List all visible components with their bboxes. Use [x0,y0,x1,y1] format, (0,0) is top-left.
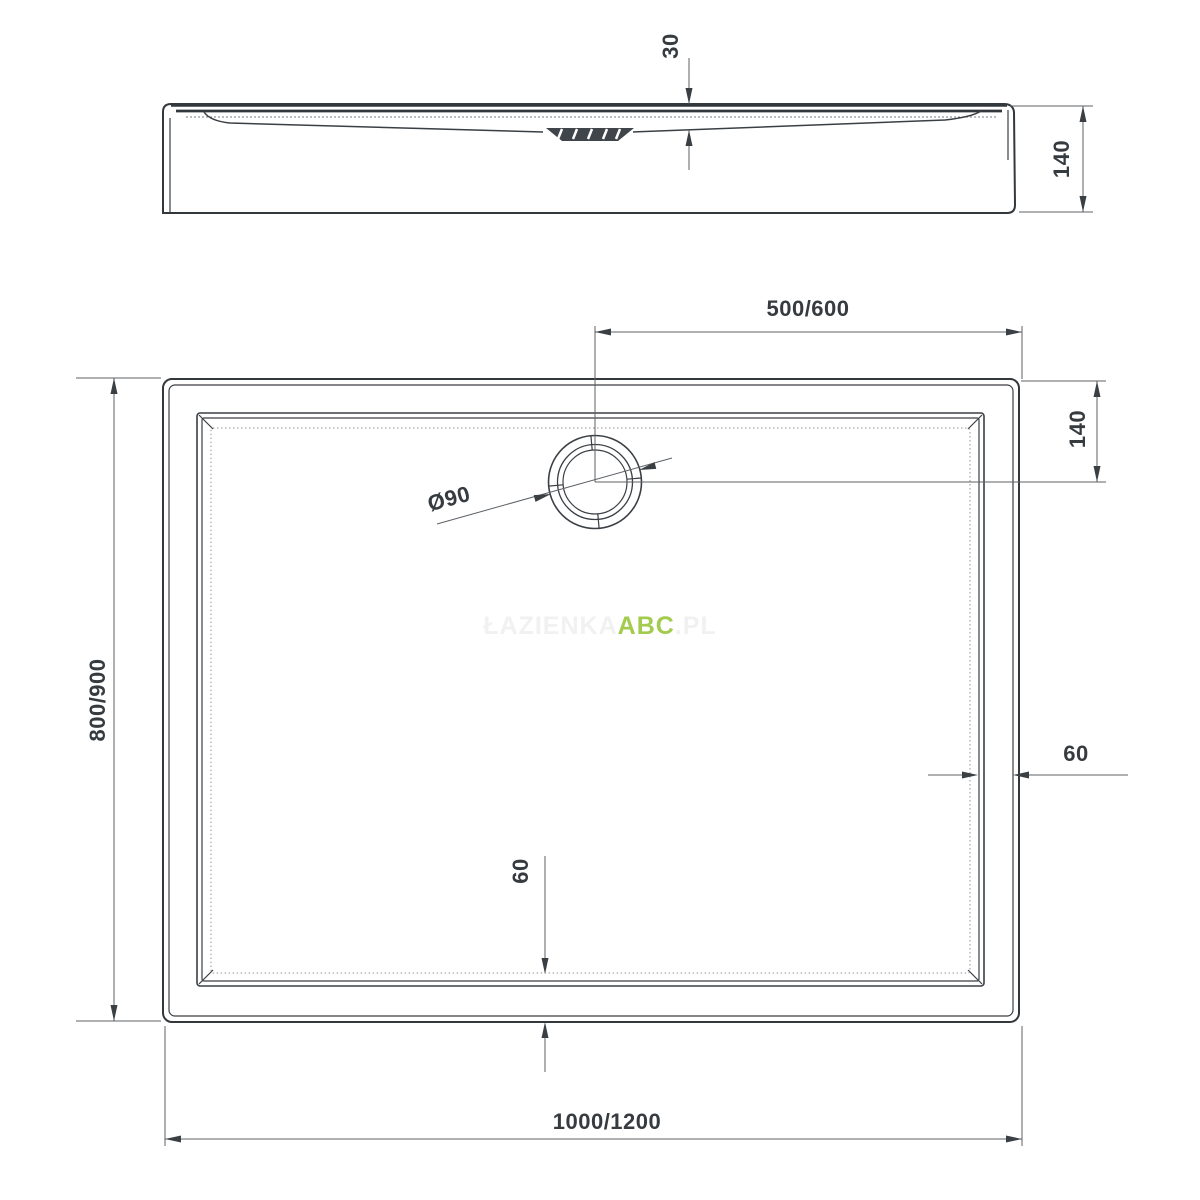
dim-label-basin-depth: 30 [658,33,683,58]
dim-label-drain-offset-x: 500/600 [766,296,849,321]
technical-drawing-page: 30 140 [0,0,1200,1200]
dim-label-drain-offset-y: 140 [1065,410,1090,448]
dim-label-section-height: 140 [1049,140,1074,178]
dim-label-rim-width-bottom: 60 [508,858,533,883]
watermark-suffix: .PL [675,612,717,640]
watermark-brand: ABC [618,612,675,640]
dim-label-tray-width: 800/900 [85,658,110,741]
dim-label-rim-width-right: 60 [1063,741,1088,766]
watermark-prefix: ŁAZIENKA [483,612,617,640]
watermark: ŁAZIENKAABC.PL [483,612,716,640]
technical-drawing-svg: 30 140 [0,0,1200,1200]
dim-label-tray-length: 1000/1200 [553,1109,662,1134]
